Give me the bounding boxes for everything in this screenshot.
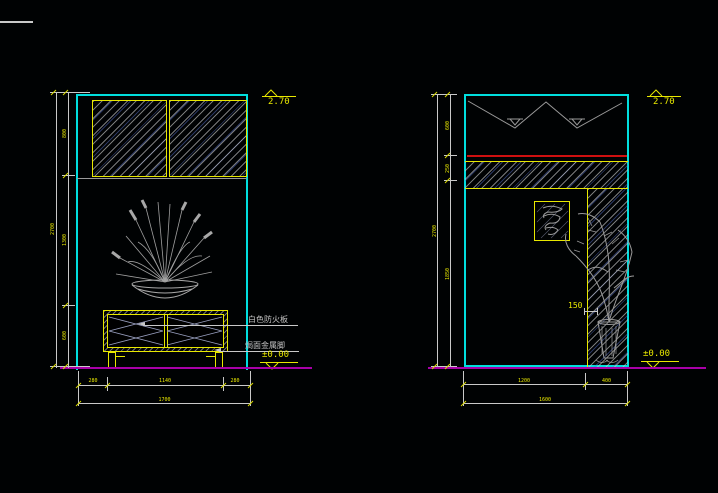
dim-value-band: 150 bbox=[568, 302, 582, 310]
dim-value-total: 1700 bbox=[123, 397, 206, 403]
dim-value: 1140 bbox=[132, 378, 198, 384]
level-value-top: 2.70 bbox=[653, 98, 675, 107]
ceiling-line bbox=[77, 94, 248, 96]
dim-value-total: 2700 bbox=[432, 225, 438, 237]
cad-canvas: 白色防火板 焗面金属脚 2.70 ±0.00 800 1300 600 2700 bbox=[0, 0, 718, 493]
level-value-floor: ±0.00 bbox=[643, 350, 670, 359]
flower-arrangement-graphic bbox=[108, 198, 222, 310]
dim-line-bottom-inner bbox=[463, 384, 628, 385]
dim-value: 400 bbox=[586, 378, 627, 384]
dim-line-bottom-outer bbox=[78, 403, 251, 404]
level-triangle-icon bbox=[263, 88, 279, 96]
dim-value: 280 bbox=[80, 378, 106, 384]
dim-tick bbox=[597, 308, 598, 315]
dim-line-vertical-inner bbox=[450, 94, 451, 367]
label-board: 白色防火板 bbox=[248, 315, 288, 324]
ceiling-drapery-graphic bbox=[466, 97, 626, 133]
red-accent-line bbox=[467, 155, 627, 157]
dim-value-total: 1600 bbox=[505, 397, 585, 403]
dim-value: 280 bbox=[221, 378, 249, 384]
leader-line-board bbox=[143, 325, 298, 326]
wall-line-left bbox=[76, 94, 78, 370]
dim-line-bottom-inner bbox=[78, 385, 251, 386]
cabinet-leg-left bbox=[108, 352, 116, 368]
potted-plant-graphic bbox=[556, 192, 636, 368]
dim-line-vertical-outer bbox=[56, 92, 57, 368]
dim-line-bottom-outer bbox=[463, 403, 628, 404]
dim-value: 250 bbox=[445, 164, 451, 173]
dim-value: 1850 bbox=[445, 268, 451, 280]
level-triangle-icon bbox=[648, 88, 664, 96]
dim-value: 1200 bbox=[484, 378, 564, 384]
dim-value: 600 bbox=[445, 121, 451, 130]
dim-line-vertical-inner bbox=[68, 92, 69, 368]
hatched-header-band bbox=[465, 161, 628, 189]
dim-value-total: 2700 bbox=[50, 223, 56, 235]
level-value-top: 2.70 bbox=[268, 98, 290, 107]
dim-value: 1300 bbox=[62, 234, 68, 246]
floor-line bbox=[428, 367, 706, 369]
upper-cabinet-door-left bbox=[92, 100, 167, 177]
dim-value: 800 bbox=[62, 129, 68, 138]
dim-ext-bottom bbox=[50, 366, 90, 367]
downlight-icon bbox=[507, 119, 585, 125]
leader-arrow-board bbox=[138, 322, 145, 326]
dim-ext-top bbox=[50, 92, 90, 93]
label-feet: 焗面金属脚 bbox=[245, 341, 285, 350]
cabinet-leg-right bbox=[215, 352, 223, 368]
level-value-floor: ±0.00 bbox=[262, 351, 289, 360]
dim-value: 600 bbox=[62, 331, 68, 340]
top-left-line bbox=[0, 21, 33, 23]
low-cabinet-door-diagonals bbox=[108, 315, 223, 347]
upper-cabinet-bottom-line bbox=[77, 178, 247, 179]
dim-tick bbox=[584, 308, 585, 315]
upper-cabinet-door-right bbox=[169, 100, 247, 177]
floor-line bbox=[60, 367, 312, 369]
leg-tick-left bbox=[116, 356, 125, 357]
dim-line-band bbox=[584, 311, 598, 312]
leader-arrow-feet bbox=[214, 348, 221, 352]
leg-tick-right bbox=[206, 356, 215, 357]
